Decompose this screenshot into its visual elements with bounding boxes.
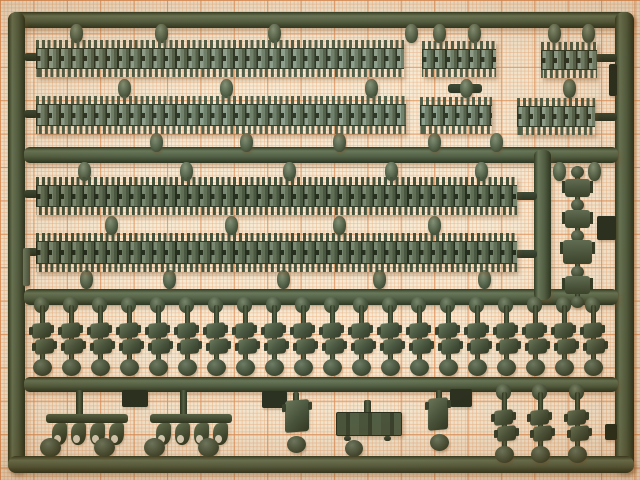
plate-foot (384, 436, 391, 441)
unit-link (497, 425, 516, 442)
unit-disc (33, 359, 52, 376)
cluster-disc (94, 438, 115, 457)
unit-link (470, 338, 489, 355)
unit-link (119, 322, 138, 339)
unit-disc (236, 359, 255, 376)
cluster-disc (198, 438, 219, 457)
small-part-unit (523, 297, 547, 379)
cluster-bar (46, 414, 128, 423)
sprue-gate-peg (80, 270, 93, 289)
unit-link (32, 322, 51, 339)
unit-link (494, 409, 513, 426)
unit-link (293, 322, 312, 339)
hook-part (175, 423, 190, 445)
chain-link (565, 179, 590, 197)
sprue-gate-peg (478, 270, 491, 289)
sprue-gate-peg (460, 79, 473, 98)
unit-disc (526, 359, 545, 376)
sprue-gate-peg (163, 270, 176, 289)
unit-link (267, 338, 286, 355)
part-disc (430, 434, 449, 451)
track-teeth (36, 207, 517, 215)
parts-cluster (150, 390, 250, 460)
sprue-gate-peg (490, 133, 503, 152)
unit-link (438, 322, 457, 339)
track-strip (420, 97, 492, 134)
unit-link (93, 338, 112, 355)
track-body (36, 185, 517, 207)
sprue-gate-peg (405, 24, 418, 43)
unit-link (61, 322, 80, 339)
sprue-gate-peg (240, 133, 253, 152)
unit-disc (468, 359, 487, 376)
small-part-unit (349, 297, 373, 379)
track-body (420, 105, 492, 126)
unit-disc (178, 359, 197, 376)
track-body (36, 104, 406, 126)
track-strip (36, 40, 404, 77)
unit-link (412, 338, 431, 355)
track-strip (541, 42, 597, 78)
unit-disc (495, 446, 514, 463)
small-part-unit (175, 297, 199, 379)
small-part-unit (492, 384, 516, 466)
unit-disc (265, 359, 284, 376)
unit-disc (381, 359, 400, 376)
part-disc (345, 440, 363, 457)
track-teeth (517, 127, 595, 135)
track-teeth (517, 98, 595, 106)
unit-link (238, 338, 257, 355)
track-body (517, 106, 595, 127)
track-teeth (541, 70, 597, 78)
sprue-gate-peg (428, 133, 441, 152)
wide-chain-part (563, 240, 592, 264)
track-teeth (420, 97, 492, 105)
unit-link (380, 322, 399, 339)
right-parts-chain (562, 166, 596, 308)
small-part-unit (59, 297, 83, 379)
track-teeth (36, 69, 404, 77)
single-link-part (426, 390, 456, 456)
unit-link (409, 322, 428, 339)
unit-disc (91, 359, 110, 376)
cluster-stem (76, 390, 83, 416)
sprue-frame-runner (534, 150, 551, 300)
small-part-unit (146, 297, 170, 379)
unit-link (528, 338, 547, 355)
unit-link (177, 322, 196, 339)
track-body (36, 241, 517, 264)
small-part-unit (552, 297, 576, 379)
unit-disc (497, 359, 516, 376)
sprue-connector (595, 54, 617, 62)
unit-link (151, 338, 170, 355)
sprue-frame-runner (615, 12, 634, 473)
flat-plate-part (336, 400, 406, 460)
small-part-unit (117, 297, 141, 379)
unit-link (206, 322, 225, 339)
track-teeth (420, 126, 492, 134)
small-part-unit (407, 297, 431, 379)
unit-link (180, 338, 199, 355)
photo-model-kit-sprue (0, 0, 640, 480)
sprue-gate-peg (582, 24, 595, 43)
unit-link (235, 322, 254, 339)
small-part-unit (581, 297, 605, 379)
unit-disc (294, 359, 313, 376)
chain-link (565, 276, 590, 294)
small-part-unit (204, 297, 228, 379)
track-body (541, 50, 597, 70)
track-teeth (36, 40, 404, 48)
unit-link (533, 425, 552, 442)
small-part-unit (378, 297, 402, 379)
sprue-frame-runner (24, 147, 618, 163)
unit-link (322, 322, 341, 339)
unit-link (530, 409, 549, 426)
unit-disc (149, 359, 168, 376)
parts-cluster (46, 390, 146, 460)
part-body (285, 399, 309, 433)
small-part-unit (465, 297, 489, 379)
chain-link (565, 210, 590, 228)
cluster-stem (180, 390, 187, 416)
sprue-frame-runner (8, 12, 25, 473)
sprue-gate-peg (563, 79, 576, 98)
unit-link (264, 322, 283, 339)
unit-link (383, 338, 402, 355)
unit-disc (568, 446, 587, 463)
sprue-gate-peg (548, 24, 561, 43)
unit-link (35, 338, 54, 355)
unit-disc (207, 359, 226, 376)
sprue-tab (609, 64, 617, 96)
unit-disc (439, 359, 458, 376)
sprue-connector (593, 113, 617, 121)
track-teeth (36, 96, 406, 104)
unit-link (209, 338, 228, 355)
sprue-gate-peg (277, 270, 290, 289)
unit-link (557, 338, 576, 355)
small-part-unit (436, 297, 460, 379)
unit-link (351, 322, 370, 339)
chain-disc (571, 166, 584, 178)
single-link-part (283, 392, 313, 458)
small-part-unit (528, 384, 552, 466)
unit-link (90, 322, 109, 339)
cluster-bar (150, 414, 232, 423)
track-strip (422, 41, 496, 77)
track-strip (36, 233, 517, 272)
small-part-unit (320, 297, 344, 379)
unit-link (567, 409, 586, 426)
track-strip (36, 177, 517, 215)
unit-link (525, 322, 544, 339)
sprue-connector (515, 250, 537, 258)
unit-link (586, 338, 605, 355)
track-teeth (36, 177, 517, 185)
sprue-tab (23, 248, 30, 286)
unit-link (325, 338, 344, 355)
small-part-unit (262, 297, 286, 379)
part-body (428, 397, 448, 431)
cluster-disc (40, 438, 61, 457)
unit-link (296, 338, 315, 355)
chain-disc (571, 296, 584, 308)
unit-disc (352, 359, 371, 376)
track-teeth (422, 69, 496, 77)
unit-link (148, 322, 167, 339)
unit-link (354, 338, 373, 355)
sprue-gate-peg (333, 133, 346, 152)
unit-disc (584, 359, 603, 376)
sprue-gate-peg (373, 270, 386, 289)
track-teeth (36, 264, 517, 272)
unit-link (554, 322, 573, 339)
unit-link (441, 338, 460, 355)
small-part-unit (30, 297, 54, 379)
track-teeth (36, 126, 406, 134)
hook-part (71, 423, 86, 445)
small-part-unit (494, 297, 518, 379)
small-part-unit (88, 297, 112, 379)
unit-link (570, 425, 589, 442)
track-teeth (541, 42, 597, 50)
unit-link (122, 338, 141, 355)
unit-disc (531, 446, 550, 463)
small-part-unit (233, 297, 257, 379)
track-body (422, 49, 496, 69)
track-body (36, 48, 404, 69)
track-strip (517, 98, 595, 135)
unit-link (496, 322, 515, 339)
unit-disc (410, 359, 429, 376)
sprue-tab (605, 424, 617, 440)
unit-link (583, 322, 602, 339)
sprue-frame-runner (8, 12, 634, 28)
unit-disc (555, 359, 574, 376)
unit-link (499, 338, 518, 355)
track-teeth (36, 233, 517, 241)
unit-disc (323, 359, 342, 376)
small-part-unit (565, 384, 589, 466)
track-strip (36, 96, 406, 134)
unit-disc (62, 359, 81, 376)
unit-link (64, 338, 83, 355)
unit-link (467, 322, 486, 339)
sprue-tab (597, 216, 616, 240)
unit-disc (120, 359, 139, 376)
small-part-unit (291, 297, 315, 379)
part-disc (287, 436, 306, 453)
sprue-gate-peg (150, 133, 163, 152)
plate-body (336, 412, 402, 436)
sprue-connector (515, 192, 537, 200)
track-teeth (422, 41, 496, 49)
cluster-disc (144, 438, 165, 457)
